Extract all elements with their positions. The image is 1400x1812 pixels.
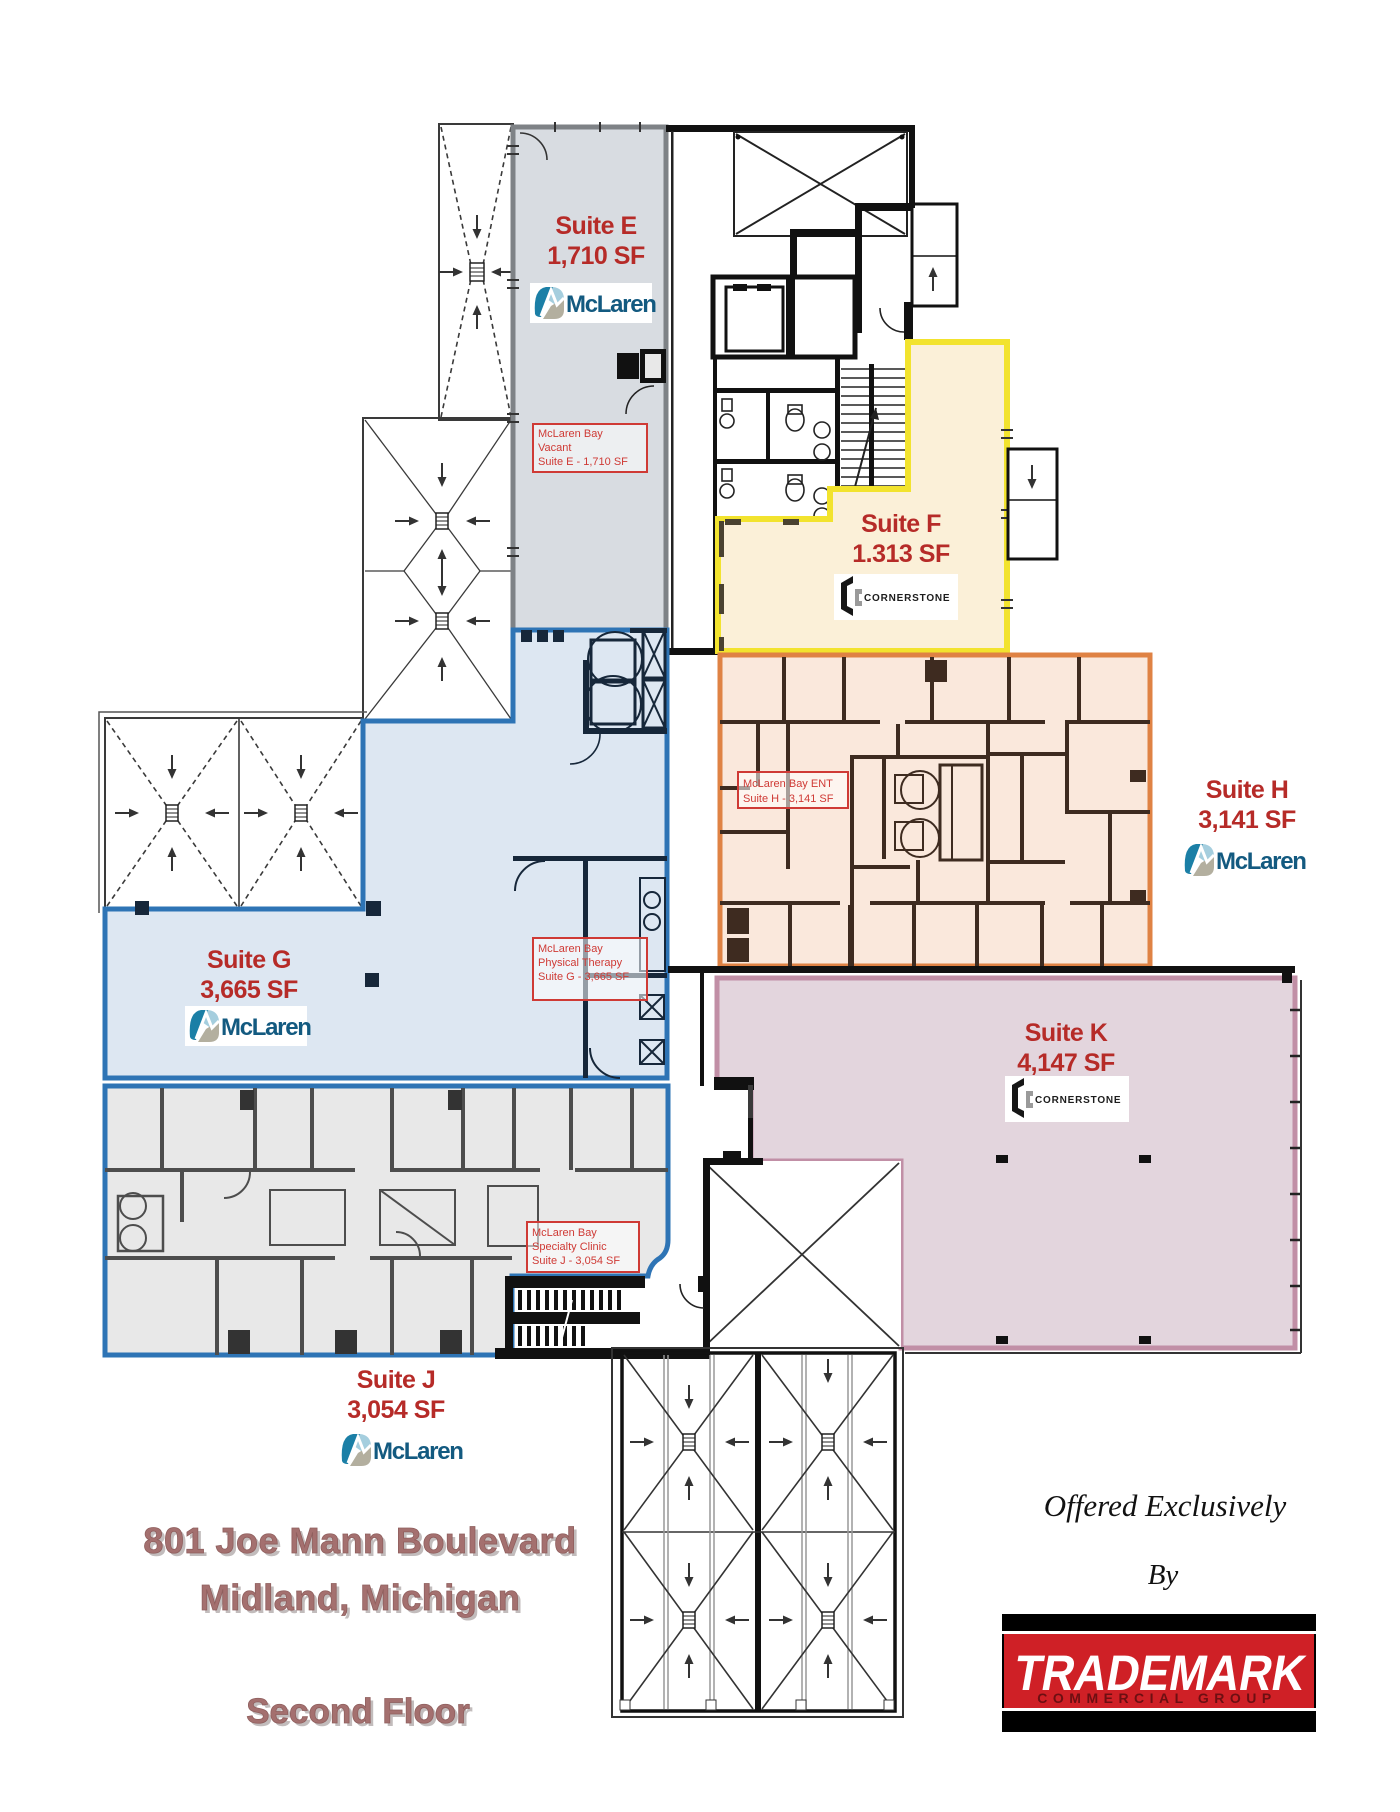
svg-text:801 Joe Mann Boulevard: 801 Joe Mann Boulevard: [143, 1520, 576, 1561]
svg-text:1.313 SF: 1.313 SF: [852, 540, 950, 568]
svg-text:3,665 SF: 3,665 SF: [200, 976, 298, 1004]
svg-text:Suite G: Suite G: [207, 946, 291, 974]
svg-text:4,147 SF: 4,147 SF: [1017, 1049, 1115, 1077]
svg-text:By: By: [1148, 1559, 1179, 1591]
svg-text:Suite K: Suite K: [1025, 1019, 1108, 1047]
svg-text:1,710 SF: 1,710 SF: [547, 242, 645, 270]
svg-text:COMMERCIAL GROUP: COMMERCIAL GROUP: [1037, 1690, 1276, 1706]
svg-text:3,054 SF: 3,054 SF: [347, 1396, 445, 1424]
svg-text:Suite J: Suite J: [357, 1366, 435, 1394]
svg-text:McLaren Bay: McLaren Bay: [532, 1227, 597, 1239]
svg-text:Offered Exclusively: Offered Exclusively: [1044, 1488, 1287, 1523]
svg-text:Second Floor: Second Floor: [246, 1692, 470, 1731]
svg-text:McLaren Bay ENT: McLaren Bay ENT: [743, 778, 833, 790]
svg-text:Suite F: Suite F: [861, 510, 941, 538]
svg-text:Suite J - 3,054 SF: Suite J - 3,054 SF: [532, 1255, 620, 1267]
svg-text:Suite H - 3,141 SF: Suite H - 3,141 SF: [743, 793, 834, 805]
svg-text:Midland, Michigan: Midland, Michigan: [200, 1577, 521, 1618]
svg-text:Suite G - 3,665 SF: Suite G - 3,665 SF: [538, 971, 629, 983]
svg-text:Suite E - 1,710 SF: Suite E - 1,710 SF: [538, 456, 628, 468]
svg-text:McLaren Bay: McLaren Bay: [538, 428, 603, 440]
svg-text:Physical Therapy: Physical Therapy: [538, 957, 623, 969]
svg-text:3,141 SF: 3,141 SF: [1198, 806, 1296, 834]
svg-text:Vacant: Vacant: [538, 442, 571, 454]
svg-text:McLaren Bay: McLaren Bay: [538, 943, 603, 955]
svg-text:Suite E: Suite E: [555, 212, 636, 240]
svg-text:Suite H: Suite H: [1206, 776, 1289, 804]
svg-text:Specialty Clinic: Specialty Clinic: [532, 1241, 607, 1253]
